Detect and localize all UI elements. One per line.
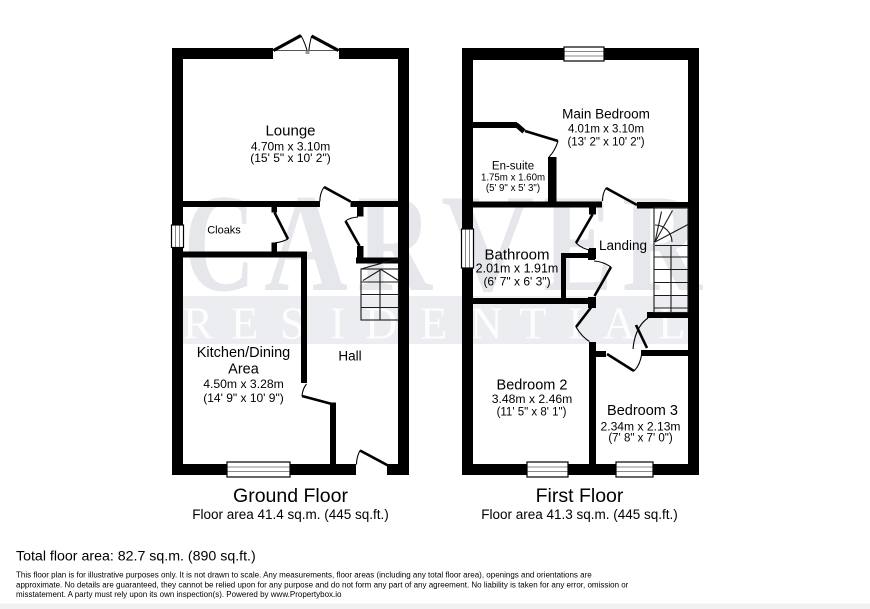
svg-text:Ground Floor: Ground Floor xyxy=(233,485,348,507)
svg-text:Floor area 41.3 sq.m. (445 sq.: Floor area 41.3 sq.m. (445 sq.ft.) xyxy=(481,507,678,522)
svg-text:misstatement. A party must rel: misstatement. A party must rely upon its… xyxy=(16,590,342,599)
svg-text:This floor plan is for illustr: This floor plan is for illustrative purp… xyxy=(16,571,592,580)
svg-text:Total floor area: 82.7 sq.m. (: Total floor area: 82.7 sq.m. (890 sq.ft.… xyxy=(16,549,256,565)
svg-text:First Floor: First Floor xyxy=(536,485,624,507)
svg-text:Floor area 41.4 sq.m. (445 sq.: Floor area 41.4 sq.m. (445 sq.ft.) xyxy=(192,507,389,522)
svg-text:approximate. No details are gu: approximate. No details are guaranteed, … xyxy=(16,580,629,589)
